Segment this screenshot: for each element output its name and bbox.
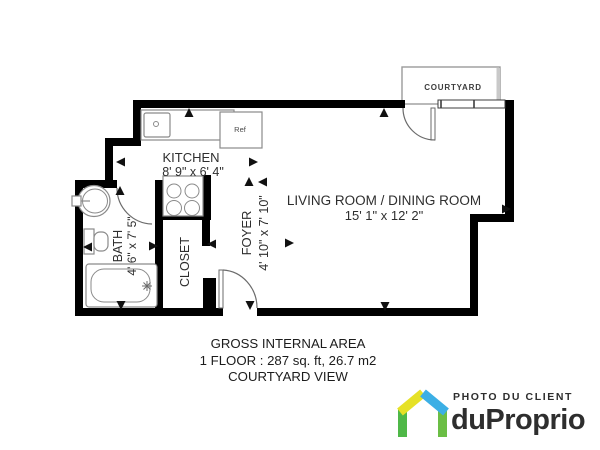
foyer-dims: 4' 10" x 7' 10"	[257, 195, 271, 271]
camera-direction-arrow	[258, 178, 267, 187]
bath-label: BATH	[111, 230, 125, 262]
branding: PHOTO DU CLIENT duProprio	[398, 391, 585, 437]
kitchen-dims: 8' 9" x 6' 4"	[162, 165, 224, 179]
refrigerator: Ref	[220, 112, 262, 148]
kitchen-label: KITCHEN	[162, 150, 219, 165]
floor-area-line: 1 FLOOR : 287 sq. ft, 26.7 m2	[200, 353, 377, 368]
fixtures: Ref	[72, 110, 262, 307]
gross-area-line: GROSS INTERNAL AREA	[211, 336, 366, 351]
photo-du-client-tagline: PHOTO DU CLIENT	[453, 391, 573, 403]
foyer-label: FOYER	[239, 211, 254, 256]
toilet	[84, 229, 108, 254]
courtyard-area: COURTYARD	[402, 67, 500, 104]
closet-label: CLOSET	[178, 237, 192, 287]
living-dining-label: LIVING ROOM / DINING ROOM	[287, 193, 481, 208]
duproprio-wordmark: duProprio	[451, 404, 585, 436]
refrigerator-label: Ref	[234, 125, 247, 134]
camera-direction-arrow	[116, 158, 125, 167]
duproprio-house-icon	[398, 393, 447, 437]
camera-direction-arrow	[246, 301, 255, 310]
tub-faucet	[142, 281, 152, 291]
camera-direction-arrow	[285, 239, 294, 248]
faucet	[72, 196, 81, 206]
floor-plan-drawing: COURTYARD	[0, 0, 600, 450]
living-dining-dims: 15' 1" x 12' 2"	[345, 208, 424, 223]
camera-direction-arrow	[380, 108, 389, 117]
camera-direction-arrow	[245, 177, 254, 186]
courtyard-edge-shading	[497, 68, 501, 103]
bathtub	[86, 264, 157, 307]
stove	[163, 176, 203, 216]
courtyard-label: COURTYARD	[424, 83, 482, 92]
camera-direction-arrow	[249, 158, 258, 167]
summary-text: GROSS INTERNAL AREA 1 FLOOR : 287 sq. ft…	[200, 336, 377, 384]
view-line: COURTYARD VIEW	[228, 369, 348, 384]
courtyard-door	[403, 108, 435, 140]
window	[438, 100, 505, 108]
floor-plan-page: COURTYARD	[0, 0, 600, 450]
bath-dims: 4' 6" x 7' 5"	[125, 216, 139, 275]
